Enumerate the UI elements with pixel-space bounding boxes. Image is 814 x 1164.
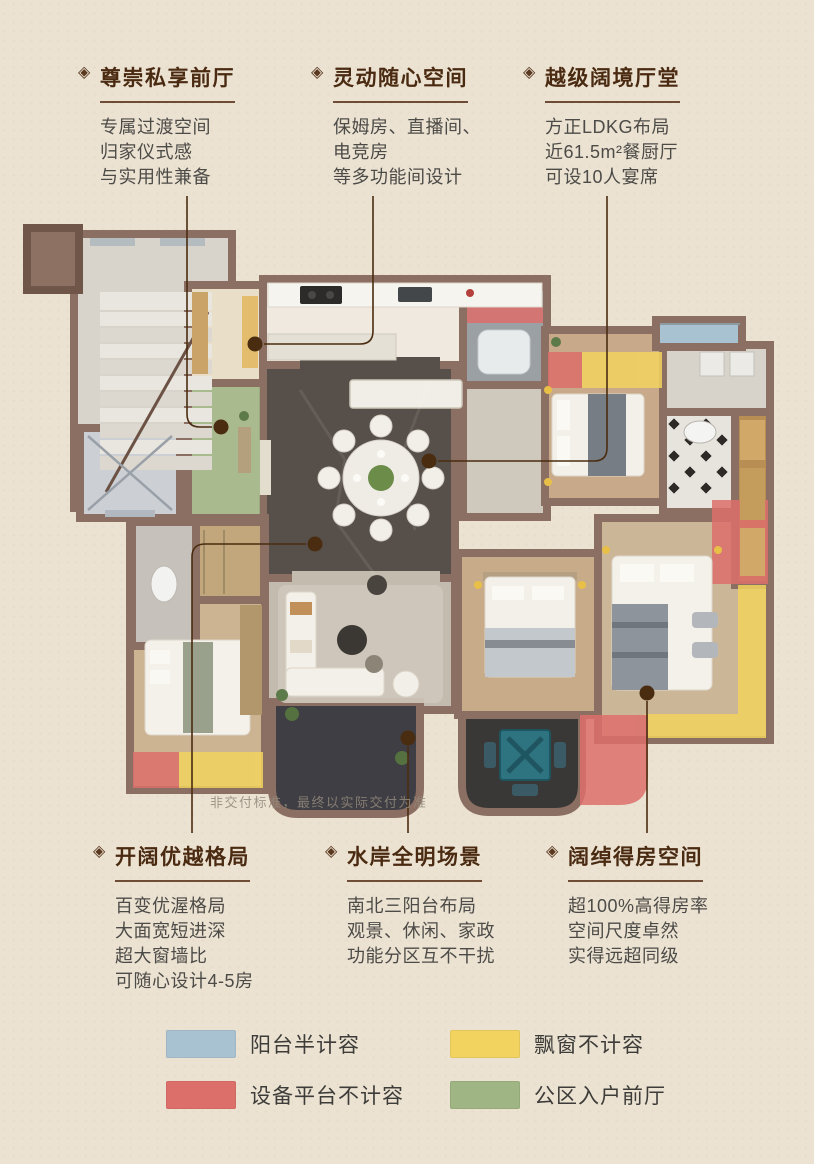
callout-title: 灵动随心空间 — [333, 62, 468, 103]
dining-table — [318, 415, 444, 541]
diamond-bullet-icon: ◈ — [523, 65, 535, 81]
callout-grand-hall: ◈ 越级阔境厅堂 方正LDKG布局 近61.5m²餐厨厅 可设10人宴席 — [545, 62, 680, 190]
legend-item-public-foyer: 公区入户前厅 — [450, 1080, 666, 1110]
callout-line: 百变优渥格局 — [115, 894, 254, 919]
bay-window-overlay — [645, 714, 766, 738]
legend-swatch-red — [166, 1081, 236, 1109]
entry-canopy — [27, 228, 79, 290]
callout-line: 大面宽短进深 — [115, 919, 254, 944]
callout-line: 实得远超同级 — [568, 944, 709, 969]
callout-line: 空间尺度卓然 — [568, 919, 709, 944]
callout-title: 阔绰得房空间 — [568, 841, 703, 882]
legend-item-balcony: 阳台半计容 — [166, 1029, 360, 1059]
diamond-bullet-icon: ◈ — [325, 844, 337, 860]
callout-waterfront-scene: ◈ 水岸全明场景 南北三阳台布局 观景、休闲、家政 功能分区互不干扰 — [347, 841, 495, 969]
callout-title: 水岸全明场景 — [347, 841, 482, 882]
callout-flex-space: ◈ 灵动随心空间 保姆房、直播间、 电竞房 等多功能间设计 — [333, 62, 481, 190]
equipment-platform-overlay — [133, 752, 179, 788]
callout-private-foyer: ◈ 尊崇私享前厅 专属过渡空间 归家仪式感 与实用性兼备 — [100, 62, 235, 190]
callout-open-layout: ◈ 开阔优越格局 百变优渥格局 大面宽短进深 超大窗墙比 可随心设计4-5房 — [115, 841, 254, 994]
callout-line: 近61.5m²餐厨厅 — [545, 140, 680, 165]
bay-window-overlay — [738, 585, 766, 715]
kitchen-sink — [398, 287, 432, 302]
callout-line: 方正LDKG布局 — [545, 115, 680, 140]
equipment-platform-overlay — [548, 352, 582, 388]
callout-usable-space: ◈ 阔绰得房空间 超100%高得房率 空间尺度卓然 实得远超同级 — [568, 841, 709, 969]
legend-item-bay-window: 飘窗不计容 — [450, 1029, 644, 1059]
toilet — [151, 566, 177, 602]
wardrobe-west — [240, 605, 262, 715]
diamond-bullet-icon: ◈ — [93, 844, 105, 860]
kitchen-island — [350, 380, 462, 408]
coffee-table — [337, 625, 367, 655]
callout-line: 归家仪式感 — [100, 140, 235, 165]
legend-swatch-blue — [166, 1030, 236, 1058]
equipment-platform-overlay — [580, 715, 648, 805]
armchair — [393, 671, 419, 697]
sofa — [286, 668, 384, 696]
callout-title: 开阔优越格局 — [115, 841, 250, 882]
callout-line: 超100%高得房率 — [568, 894, 709, 919]
callout-line: 可随心设计4-5房 — [115, 969, 254, 994]
diamond-bullet-icon: ◈ — [546, 844, 558, 860]
table-centerpiece — [368, 465, 394, 491]
legend-item-equipment-platform: 设备平台不计容 — [166, 1080, 404, 1110]
callout-title: 越级阔境厅堂 — [545, 62, 680, 103]
cooktop — [300, 286, 342, 304]
legend-label: 阳台半计容 — [250, 1029, 360, 1059]
bathtub — [478, 330, 530, 374]
callout-line: 功能分区互不干扰 — [347, 944, 495, 969]
callout-line: 电竞房 — [333, 140, 481, 165]
hallway — [463, 385, 547, 517]
floorplan-poster: { "bullet": "◈", "disclaimer": "非交付标准，最终… — [0, 0, 814, 1164]
legend-swatch-yellow — [450, 1030, 520, 1058]
diamond-bullet-icon: ◈ — [78, 65, 90, 81]
callout-line: 专属过渡空间 — [100, 115, 235, 140]
legend-label: 公区入户前厅 — [534, 1080, 666, 1110]
callout-line: 观景、休闲、家政 — [347, 919, 495, 944]
callout-line: 保姆房、直播间、 — [333, 115, 481, 140]
legend-label: 设备平台不计容 — [250, 1080, 404, 1110]
legend-swatch-green — [450, 1081, 520, 1109]
callout-line: 南北三阳台布局 — [347, 894, 495, 919]
closet-west — [196, 522, 264, 600]
callout-line: 超大窗墙比 — [115, 944, 254, 969]
floor-plan-rendering — [0, 185, 814, 840]
callout-title: 尊崇私享前厅 — [100, 62, 235, 103]
diamond-bullet-icon: ◈ — [311, 65, 323, 81]
legend-label: 飘窗不计容 — [534, 1029, 644, 1059]
bay-window-overlay — [582, 352, 662, 388]
bathtub-east — [684, 421, 716, 443]
disclaimer-text: 非交付标准，最终以实际交付为准 — [210, 792, 428, 811]
